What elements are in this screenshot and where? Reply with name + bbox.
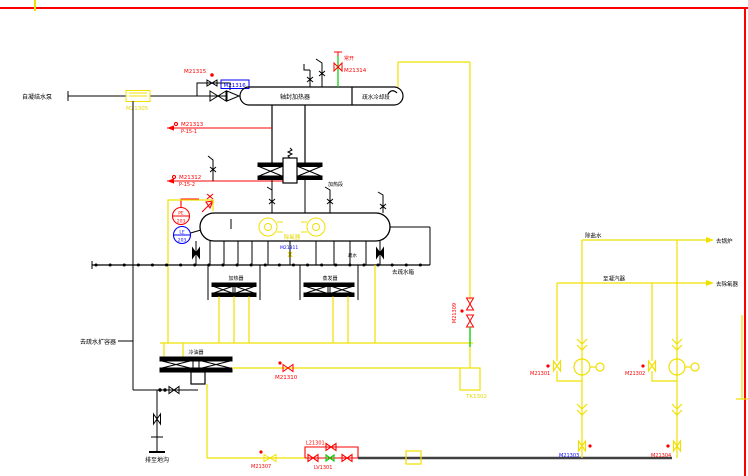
valve-tag-m21315: M21315 bbox=[184, 69, 207, 75]
steam-line1-spec: P-15-1 bbox=[181, 129, 197, 135]
tag-m21311: M21311 bbox=[280, 245, 298, 251]
strainer-symbol bbox=[126, 91, 150, 102]
to-deaerator-label: 去除氧器 bbox=[716, 280, 739, 288]
cad-drawing-canvas: M21305 M21315 M21316 自凝结水泵 轴封加 bbox=[0, 0, 748, 476]
valve-tag-m21314: M21314 bbox=[344, 68, 367, 74]
oil-cooler-label: 冷油器 bbox=[188, 349, 203, 356]
device-tk1302-label: TK1302 bbox=[465, 394, 487, 400]
vent-valve bbox=[267, 187, 333, 204]
pump-1 bbox=[574, 240, 604, 458]
instrument-pe-tag: PE bbox=[178, 211, 184, 217]
heater-left-label: 加热器 bbox=[228, 275, 243, 282]
deaerator-label: 除氧器 bbox=[284, 233, 301, 241]
valve-dot-red bbox=[210, 73, 214, 77]
heater-box-left bbox=[208, 265, 260, 300]
steam-line2-tag: M21312 bbox=[179, 175, 201, 181]
feed-source-label: 自凝结水泵 bbox=[22, 93, 52, 101]
control-valve-station bbox=[460, 298, 480, 390]
vent-valve bbox=[316, 59, 325, 87]
floor-drain bbox=[149, 390, 165, 452]
bottom-header bbox=[207, 444, 672, 465]
normally-open-label: 常开 bbox=[344, 55, 354, 62]
valve-tag-m21307: M21307 bbox=[251, 464, 271, 470]
mid-heater-label: 加热段 bbox=[328, 181, 343, 188]
right-edge-line bbox=[736, 315, 748, 399]
vent-valve bbox=[378, 192, 386, 213]
yellow-top-run bbox=[398, 62, 470, 300]
drain-small-label: 疏水 bbox=[348, 252, 357, 259]
drawing-border bbox=[0, 0, 748, 476]
heater-right-label: 蒸发器 bbox=[322, 275, 337, 282]
vent-line-m21314 bbox=[316, 52, 342, 87]
instrument-le-number: 203 bbox=[178, 238, 187, 244]
pump-2 bbox=[666, 240, 699, 458]
vessel-right-section-label: 疏水冷却段 bbox=[362, 93, 390, 101]
valve-m21310 bbox=[278, 361, 293, 371]
steam-line2-spec: P-15-2 bbox=[179, 182, 195, 188]
pump-1-branch bbox=[546, 283, 582, 381]
vent-valve bbox=[304, 64, 313, 87]
to-drain-tank-label: 去疏水箱 bbox=[392, 268, 415, 276]
demin-water-label: 除盐水 bbox=[585, 232, 602, 240]
condensate-feed-line: M21305 M21315 M21316 bbox=[68, 69, 249, 112]
vessel-left-section-label: 轴封加热器 bbox=[280, 93, 310, 101]
valve-tag-l21301: L21301 bbox=[306, 441, 325, 447]
valve-tag-m21303: M21303 bbox=[559, 453, 579, 459]
to-boiler-label: 去锅炉 bbox=[716, 237, 733, 245]
oil-cooler-bundle bbox=[160, 357, 232, 384]
valve-tag-lv1301: LV1301 bbox=[314, 465, 332, 471]
instrument-le-tag: LE bbox=[179, 230, 185, 236]
drain-manifold bbox=[92, 241, 430, 269]
vent-valve bbox=[208, 156, 216, 181]
left-drop-line bbox=[118, 101, 198, 452]
pid-diagram: M21305 M21315 M21316 自凝结水泵 轴封加 bbox=[0, 0, 748, 476]
to-flash-tank-label: 去疏水扩容器 bbox=[80, 338, 116, 346]
valve-m21307 bbox=[259, 450, 276, 461]
valve-tag-m21316: M21316 bbox=[224, 83, 247, 89]
valve-tag-m21301: M21301 bbox=[530, 371, 550, 377]
drain-ditch-label: 排至地沟 bbox=[145, 456, 169, 464]
steam-line1-tag: M21313 bbox=[181, 122, 204, 128]
valve-tag-m21304: M21304 bbox=[651, 453, 671, 459]
oil-cooler-yellow-out bbox=[207, 368, 460, 458]
pump-area bbox=[546, 237, 714, 458]
valve-tag-m21310: M21310 bbox=[275, 375, 298, 381]
deaerator-vessel bbox=[200, 192, 430, 265]
valve-tag-m21302: M21302 bbox=[625, 371, 645, 377]
pump-2-branch bbox=[641, 283, 677, 381]
valve-tag-m21309: M21309 bbox=[452, 303, 458, 323]
instrument-pe-number: 203 bbox=[177, 219, 186, 225]
strainer-tag: M21305 bbox=[126, 106, 149, 112]
to-condenser-label: 至凝汽器 bbox=[603, 275, 626, 283]
heater-box-right bbox=[300, 265, 358, 300]
